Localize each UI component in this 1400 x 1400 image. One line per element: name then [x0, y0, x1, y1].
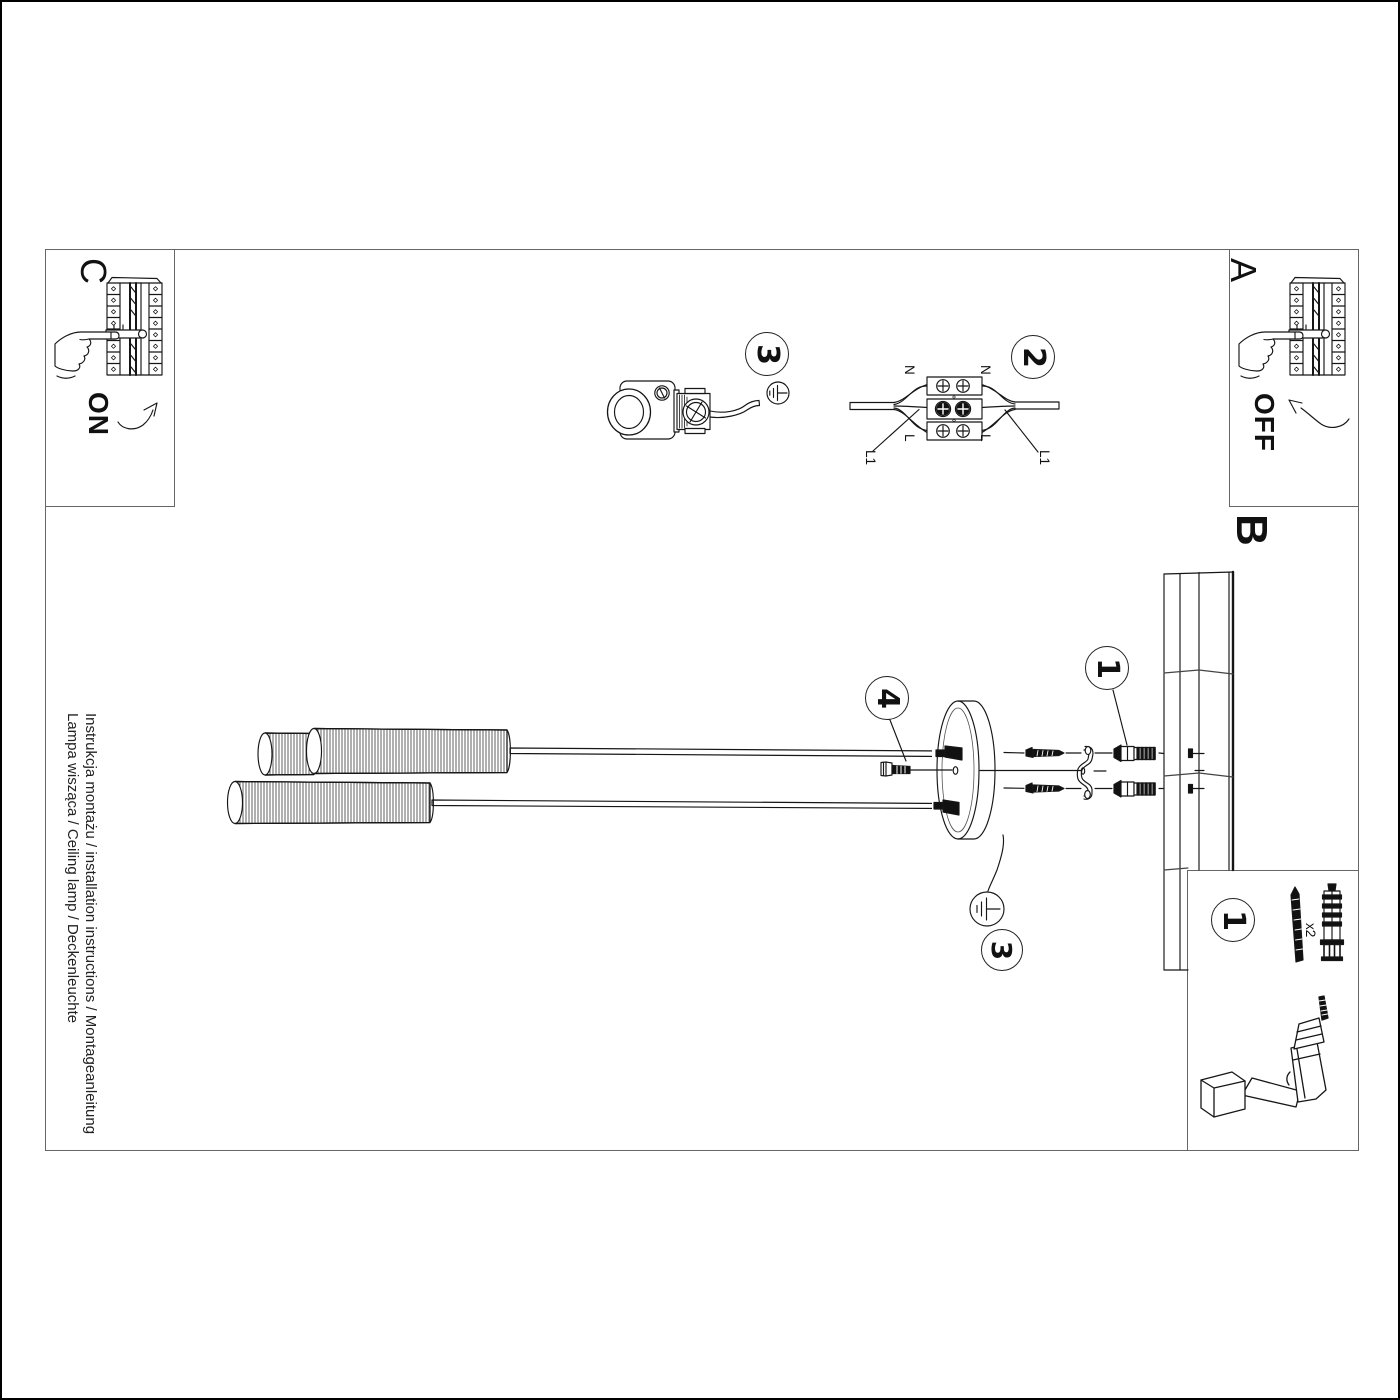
instructions-title: Instrukcja montażu / installation instru…: [82, 713, 99, 1134]
drill-icon: [1201, 996, 1328, 1117]
section-a-label: A: [1223, 258, 1264, 283]
step-badge-wall: 1: [1085, 646, 1129, 690]
step-badge-terminal: 2: [1011, 335, 1055, 379]
earth-symbol-icon: [970, 892, 1004, 926]
step-badge-canopy-earth: 3: [981, 929, 1023, 971]
kit-quantity-label: x2: [1302, 923, 1318, 937]
ceiling-hook-part: [608, 381, 790, 439]
kit-wall-plug-icon: [1321, 884, 1344, 961]
screw-icon: [1026, 748, 1064, 758]
section-b-label: B: [1225, 514, 1276, 546]
earth-symbol-icon: [767, 382, 789, 404]
terminal-l-right: L: [977, 434, 993, 442]
wall-plug-icon: [1114, 781, 1155, 798]
mounting-hardware: [980, 690, 1204, 799]
step-badge-hook: 3: [745, 332, 789, 376]
turn-off-arrow-icon: [1289, 400, 1349, 427]
earth-wire: [710, 401, 760, 418]
diagram-artwork: [2, 2, 1400, 1400]
terminal-n-left: N: [901, 365, 917, 375]
hanging-rod-upper: [510, 748, 945, 757]
earth-leader: [988, 835, 1004, 891]
lamp-shades: [228, 729, 946, 824]
wall-plug-icon: [1114, 745, 1155, 762]
kit-screw-icon: [1291, 887, 1303, 962]
terminal-l1-right: L1: [1036, 450, 1052, 465]
switch-off-label: OFF: [1248, 393, 1280, 452]
terminal-l-left: L: [901, 434, 917, 442]
screw-icon: [1026, 783, 1064, 793]
step-badge-kit: 1: [1211, 898, 1255, 942]
terminal-l1-left: L1: [862, 450, 878, 465]
switch-on-label: ON: [82, 392, 114, 436]
l1-leader-right: [1005, 410, 1038, 452]
product-title: Lampa wisząca / Ceiling lamp / Deckenleu…: [64, 713, 81, 1023]
step-badge-bolt: 4: [865, 676, 909, 720]
turn-on-arrow-icon: [118, 403, 157, 429]
instruction-sheet: C A B ON OFF N N L L L1 L1 x2 3 2 1 4 3 …: [0, 0, 1400, 1400]
bolt-leader: [890, 720, 906, 761]
hanging-rod-lower: [432, 800, 943, 809]
l1-leader-left: [873, 410, 919, 452]
section-c-label: C: [73, 258, 114, 285]
mounting-bracket: [1077, 746, 1093, 799]
ceiling-canopy: [932, 700, 1004, 926]
wall-step-leader: [1113, 690, 1127, 745]
terminal-block: [850, 377, 1059, 452]
terminal-n-right: N: [977, 365, 993, 375]
